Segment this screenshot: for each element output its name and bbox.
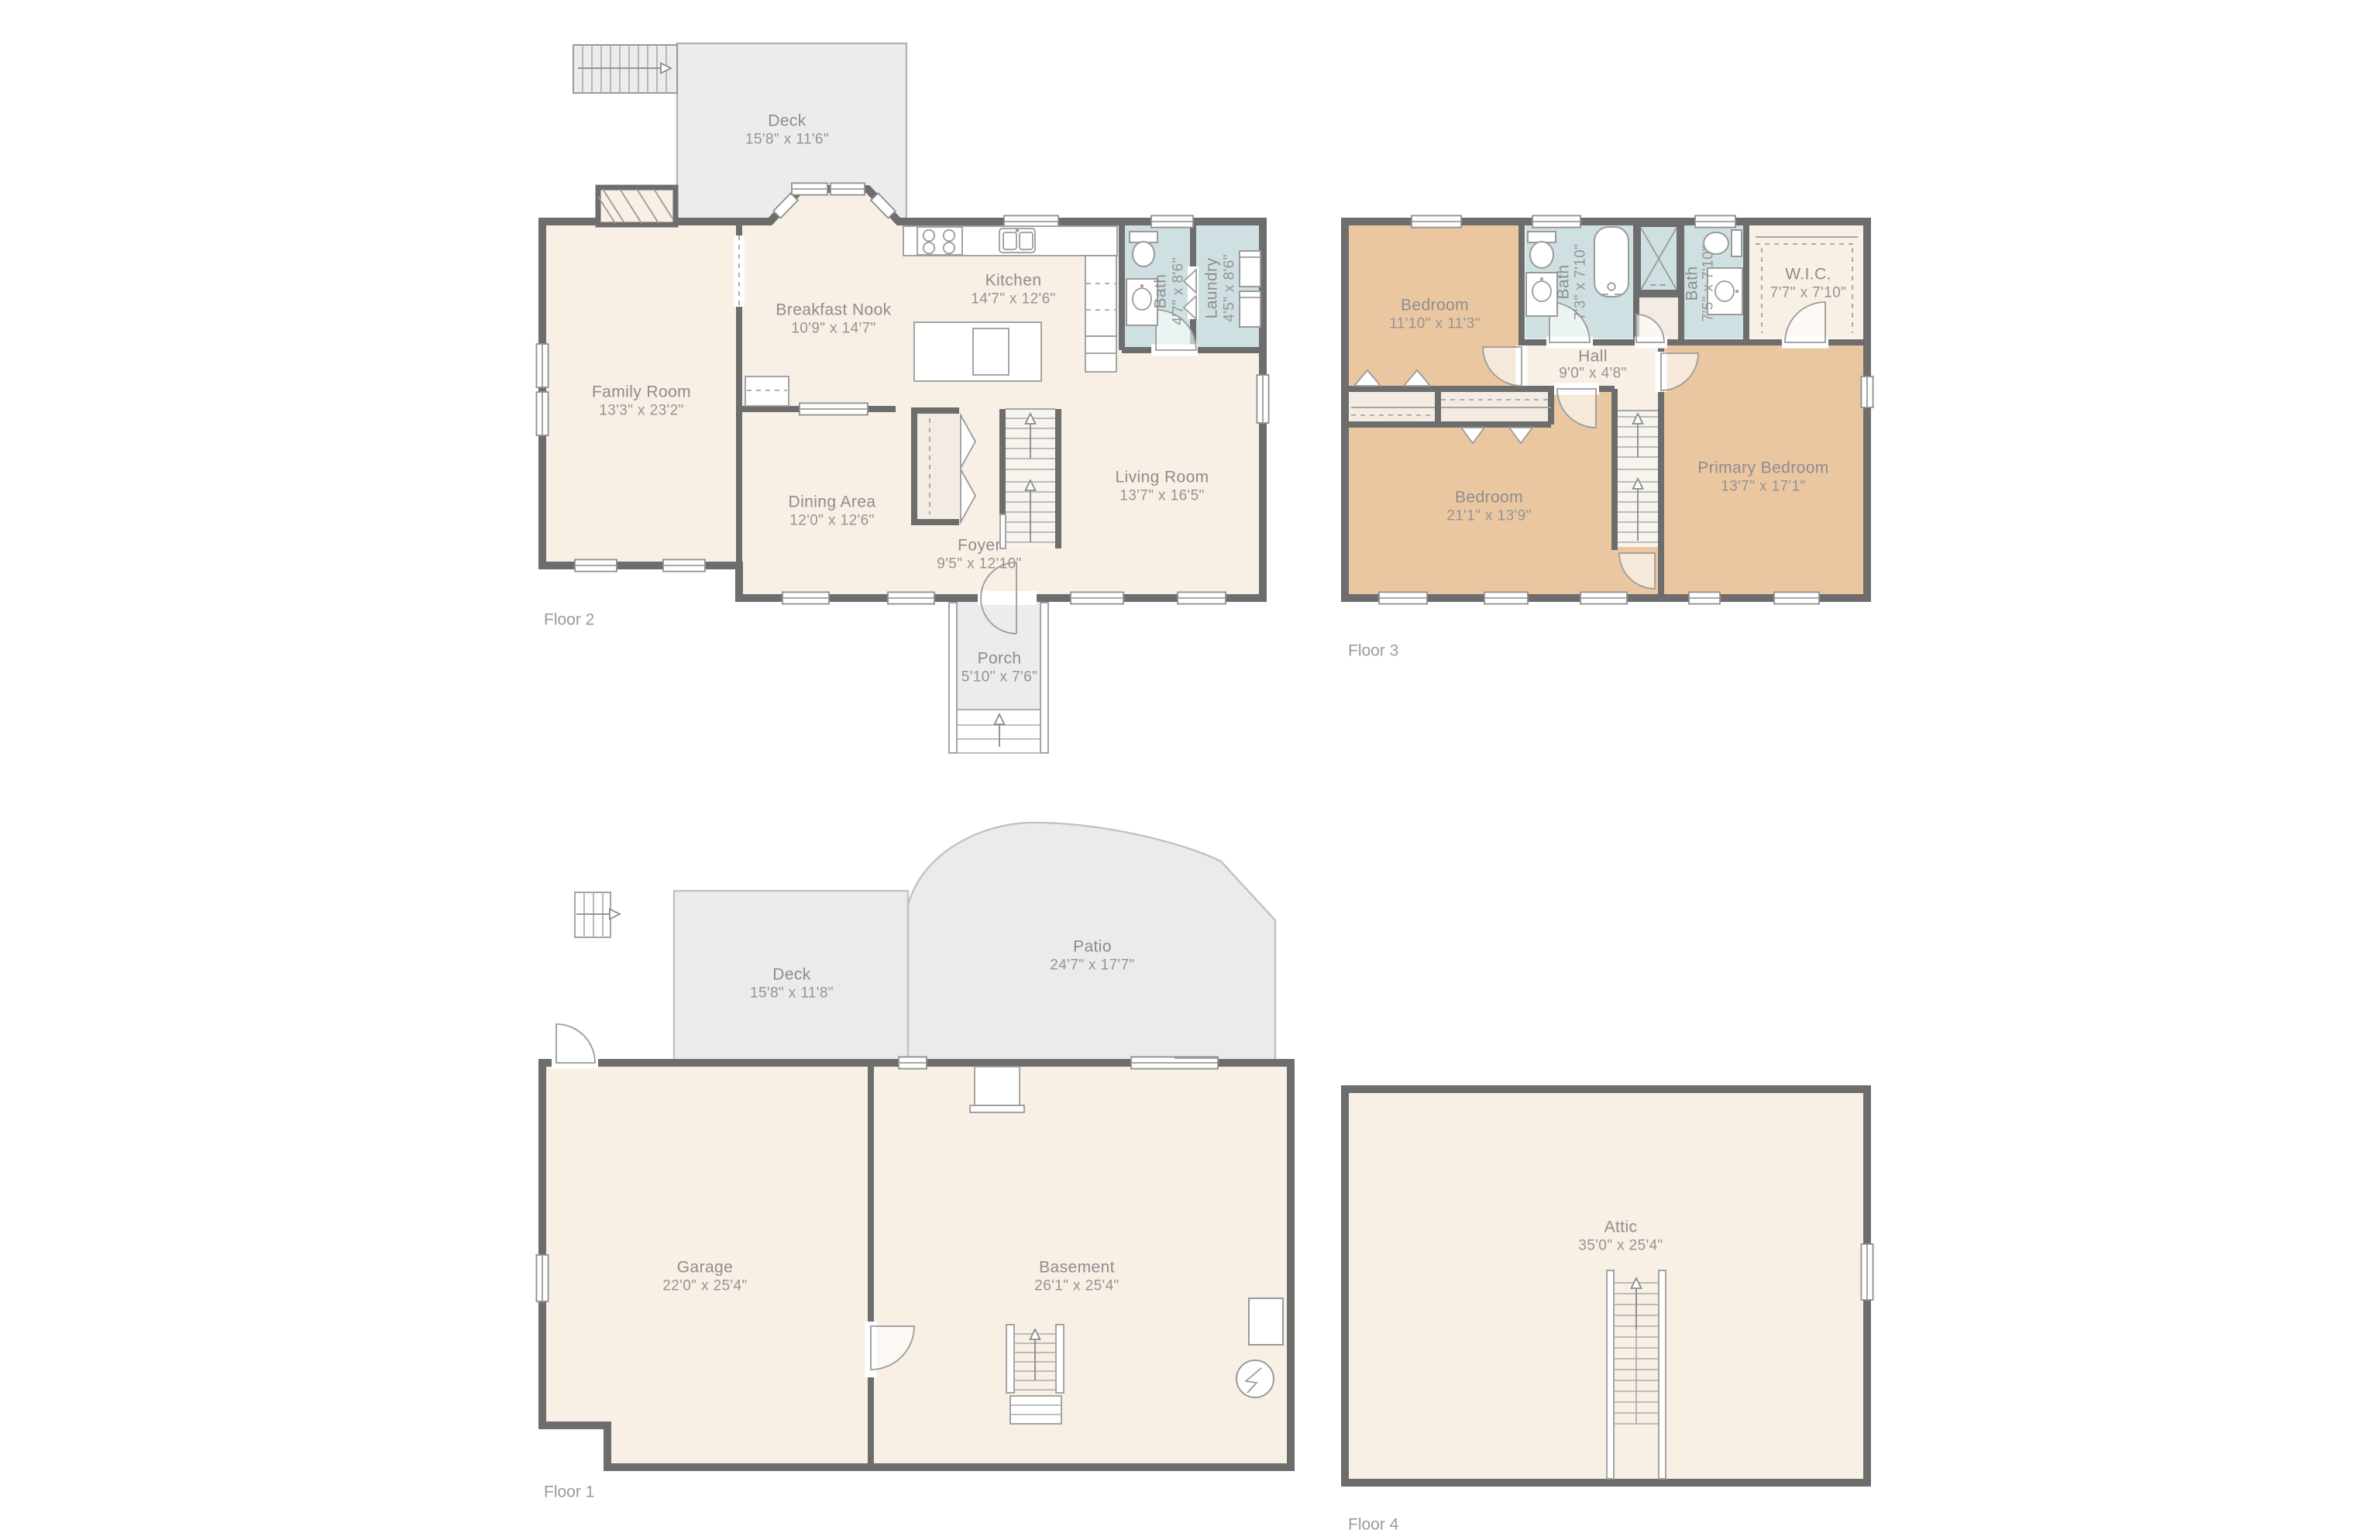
room-label-garage: Garage: [677, 1259, 733, 1277]
kitchen-island: [914, 322, 1041, 381]
room-label-laundry: Laundry: [1203, 258, 1221, 319]
room-label-patio: Patio: [1073, 938, 1112, 956]
room-dims-bedroom2: 21'1" x 13'9": [1446, 508, 1531, 524]
toilet-icon-bath1: [1528, 232, 1556, 268]
room-dims-deck-f2: 15'8" x 11'6": [745, 132, 829, 148]
room-label-kitchen: Kitchen: [985, 272, 1042, 290]
bathtub-icon: [1594, 227, 1629, 297]
deck-stairs-icon: [573, 45, 677, 93]
kitchen-sink-icon: [999, 229, 1035, 253]
room-dims-kitchen: 14'7" x 12'6": [971, 291, 1055, 308]
chimney-base-icon: [970, 1067, 1024, 1112]
floor-2-plan: Deck 15'8" x 11'6" Kitchen 14'7" x 12'6"…: [536, 43, 1268, 753]
room-dims-wic: 7'7" x 7'10": [1770, 285, 1846, 301]
room-label-porch: Porch: [978, 650, 1022, 668]
room-dims-hall: 9'0" x 4'8": [1559, 366, 1626, 382]
room-label-deck-f1: Deck: [772, 966, 811, 984]
floor3-label: Floor 3: [1348, 642, 1398, 660]
room-label-bedroom1: Bedroom: [1401, 297, 1469, 315]
room-label-deck-f2: Deck: [768, 112, 807, 130]
floorplan-sheet: Deck 15'8" x 11'6" Kitchen 14'7" x 12'6"…: [0, 0, 2380, 1540]
floor-4-plan: Attic 35'0" x 25'4" Floor 4: [1345, 1089, 1873, 1534]
floor2-label: Floor 2: [544, 611, 594, 629]
room-label-wic: W.I.C.: [1785, 266, 1831, 284]
room-label-basement: Basement: [1039, 1259, 1115, 1277]
room-dims-primary: 13'7" x 17'1": [1721, 479, 1805, 495]
room-dims-family: 13'3" x 23'2": [599, 403, 683, 419]
floor1-footprint: [542, 1063, 1291, 1467]
chimney-icon: [598, 187, 676, 225]
room-dims-patio: 24'7" x 17'7": [1050, 957, 1134, 974]
floor-3-plan: Bedroom 11'10" x 11'3" Bath 7'3" x 7'10"…: [1345, 215, 1873, 659]
room-label-bath2: Bath: [1684, 266, 1701, 301]
deck-steps-icon: [575, 892, 620, 937]
room-label-hall: Hall: [1578, 348, 1608, 366]
room-label-attic: Attic: [1604, 1219, 1638, 1236]
room-dims-deck-f1: 15'8" x 11'8": [750, 985, 834, 1002]
room-label-living: Living Room: [1115, 469, 1209, 486]
room-label-bath1: Bath: [1555, 265, 1573, 300]
floor1-label: Floor 1: [544, 1483, 594, 1501]
room-dims-foyer: 9'5" x 12'10": [937, 556, 1021, 572]
room-dims-bath2: 7'5" x 7'10": [1701, 246, 1717, 321]
room-dims-bath1: 7'3" x 7'10": [1573, 244, 1589, 320]
toilet-icon-f2: [1130, 232, 1157, 266]
room-label-breakfast: Breakfast Nook: [776, 301, 891, 319]
room-dims-attic: 35'0" x 25'4": [1578, 1238, 1663, 1254]
room-label-dining: Dining Area: [789, 493, 876, 511]
room-label-bedroom2: Bedroom: [1455, 489, 1523, 507]
stove-icon: [917, 227, 962, 255]
room-label-family: Family Room: [592, 383, 691, 401]
room-dims-bedroom1: 11'10" x 11'3": [1389, 316, 1481, 332]
floor4-label: Floor 4: [1348, 1516, 1399, 1534]
room-label-foyer: Foyer: [958, 537, 1001, 555]
room-dims-breakfast: 10'9" x 14'7": [791, 321, 875, 337]
room-dims-dining: 12'0" x 12'6": [789, 513, 874, 529]
floor-1-plan: Deck 15'8" x 11'8" Patio 24'7" x 17'7" G…: [536, 823, 1291, 1501]
room-dims-bath-f2: 4'7" x 8'6": [1171, 257, 1187, 325]
sink-icon-bath1: [1526, 273, 1557, 316]
room-dims-porch: 5'10" x 7'6": [961, 669, 1037, 686]
room-dims-basement: 26'1" x 25'4": [1034, 1278, 1119, 1294]
attic-area: [1349, 1093, 1863, 1479]
room-dims-living: 13'7" x 16'5": [1119, 488, 1204, 504]
room-dims-laundry: 4'5" x 8'6": [1222, 254, 1238, 321]
room-label-bath-f2: Bath: [1152, 274, 1170, 309]
room-label-primary: Primary Bedroom: [1697, 459, 1828, 477]
room-dims-garage: 22'0" x 25'4": [662, 1278, 747, 1294]
pantry-closet: [745, 376, 789, 406]
